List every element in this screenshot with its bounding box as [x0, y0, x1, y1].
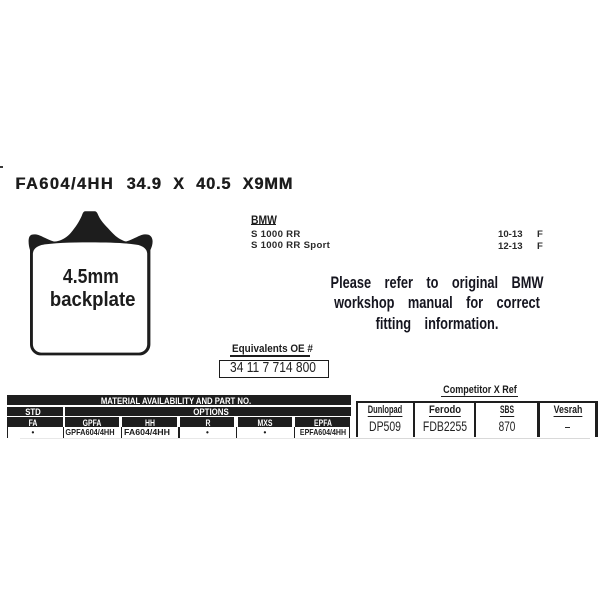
svg-text:4.5mm: 4.5mm — [63, 266, 119, 288]
svg-text:backplate: backplate — [50, 288, 136, 311]
